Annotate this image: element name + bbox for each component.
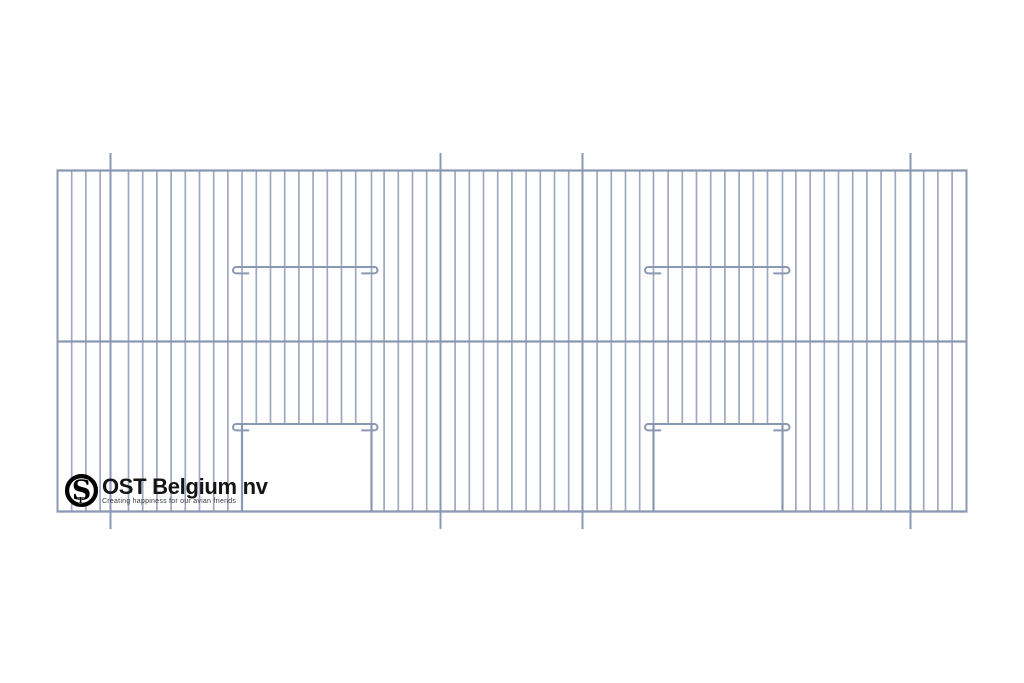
brand-tagline: Creating happiness for our avian friends [102,498,268,505]
cage-front-wire-panel [0,0,1024,683]
cage-front-drawing-page: S T OST Belgium nv Creating happiness fo… [0,0,1024,683]
door-top-hooked-wire [645,424,790,430]
brand-logo: S T OST Belgium nv Creating happiness fo… [63,472,268,509]
brand-name: OST Belgium nv [102,476,268,497]
door-top-hooked-wire [233,424,378,430]
monogram-letter-t: T [77,495,84,505]
ost-monogram-icon: S T [63,472,100,509]
brand-text-block: OST Belgium nv Creating happiness for ou… [102,472,268,505]
